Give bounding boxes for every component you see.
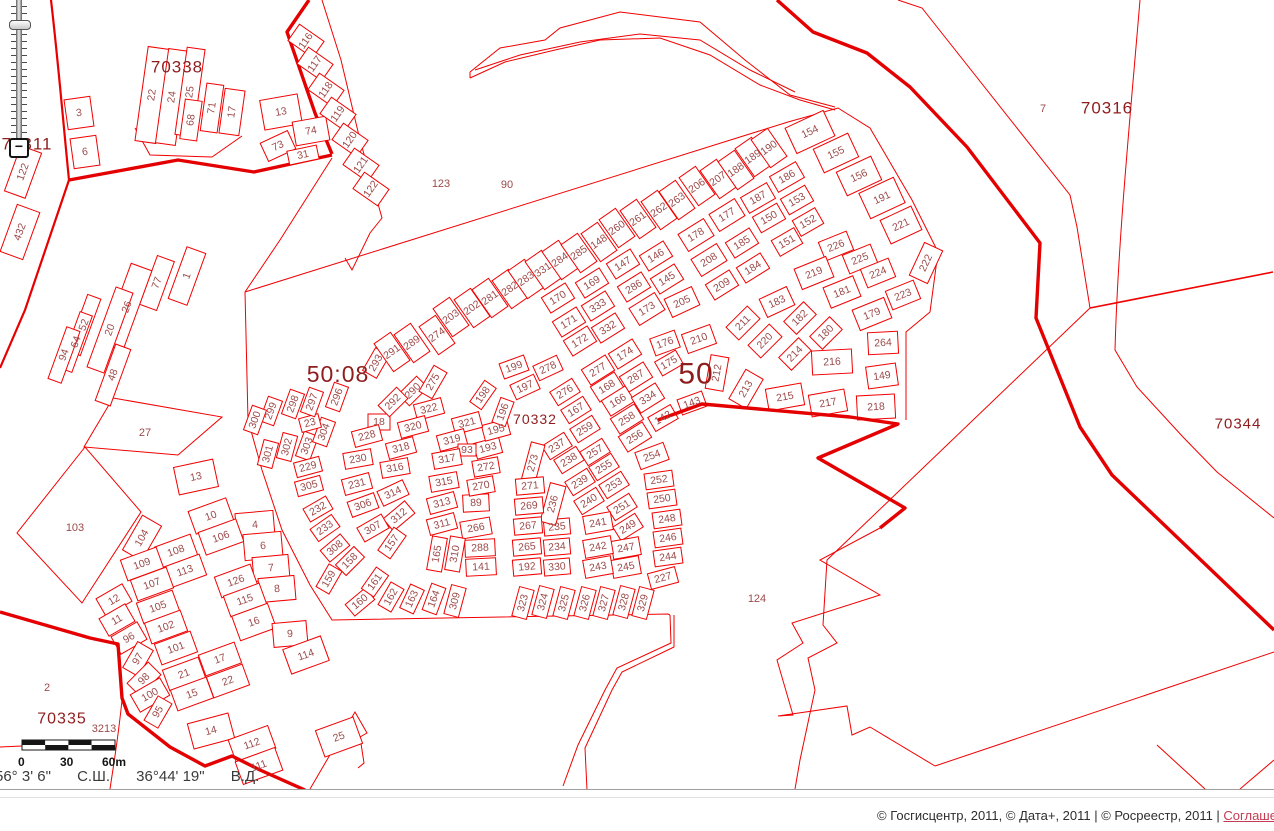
cadastral-zone-label: 70335 [37, 711, 87, 728]
cadastral-zone-label: 70316 [1081, 99, 1133, 118]
parcel-number: 216 [823, 356, 841, 369]
zoom-slider[interactable]: − [7, 0, 33, 164]
parcel-number: 244 [658, 550, 677, 564]
scale-bar-graphic [0, 738, 200, 754]
parcel-number: 93 [461, 444, 473, 456]
parcel-number: 267 [519, 519, 538, 532]
parcel-number: 22 [145, 88, 159, 101]
map-label: 27 [139, 427, 151, 439]
corridor-line [563, 615, 671, 786]
parcel-number: 218 [867, 401, 885, 414]
corridor-line [585, 615, 674, 789]
map-label: 123 [432, 178, 450, 190]
map-label: 7 [1040, 103, 1046, 115]
boundary-line [0, 180, 69, 368]
parcel-number: 288 [471, 542, 489, 555]
parcel-number: 149 [872, 369, 891, 383]
parcel-number: 252 [649, 473, 668, 487]
longitude-dir: В.Д. [231, 768, 260, 785]
parcel-number: 74 [304, 124, 318, 138]
boundary-line [795, 308, 1090, 789]
zigzag-boundary [777, 528, 935, 766]
parcel-number: 68 [184, 113, 198, 126]
boundary-line [51, 0, 69, 180]
map-viewport[interactable]: 3612243222242568711713747331116117118119… [0, 0, 1274, 789]
copyright-credits: © Госгисцентр, 2011, © Дата+, 2011 | © Р… [877, 808, 1274, 823]
scale-tick-60: 60m [102, 755, 126, 769]
parcel-number: 25 [183, 85, 197, 98]
parcel-number: 248 [657, 512, 676, 526]
boundary-curve [1115, 0, 1274, 518]
footer-divider [0, 797, 1274, 798]
parcel-number: 246 [658, 531, 677, 545]
parcel-number: 269 [520, 499, 539, 512]
parcel-number: 235 [548, 520, 567, 533]
parcel-number: 18 [373, 416, 385, 428]
footer: © Госгисцентр, 2011, © Дата+, 2011 | © Р… [0, 789, 1274, 831]
parcel-number: 141 [472, 561, 490, 574]
parcel-number: 24 [165, 90, 179, 103]
boundary-line [1157, 745, 1205, 789]
scale-tick-0: 0 [18, 755, 25, 769]
parcel-number: 271 [521, 479, 540, 492]
zone-boundary-thick [777, 0, 1274, 630]
agreement-link[interactable]: Соглашение об исп [1223, 808, 1274, 823]
stream-inner [475, 34, 795, 92]
parcel-27-outline [84, 398, 222, 455]
parcel-number: 71 [205, 101, 219, 114]
cadastral-map[interactable]: 3612243222242568711713747331116117118119… [0, 0, 1274, 789]
scale-tick-30: 30 [60, 755, 73, 769]
parcel-number: 89 [470, 497, 482, 510]
stream-outline [470, 38, 835, 110]
parcel-number: 250 [652, 492, 671, 506]
parcel-number: 264 [874, 337, 892, 350]
cadastral-zone-label: 50 [678, 358, 713, 391]
cadastral-zone-label: 50:08 [307, 361, 370, 387]
parcel-number: 17 [225, 105, 239, 118]
boundary-line [935, 652, 1274, 766]
parcel-rects [0, 24, 942, 784]
coordinates-readout: 56° 3' 6" С.Ш. 36°44' 19" В.Д. [0, 768, 635, 785]
zone-labels: 70311703387031670344703357033250:0850 [1, 58, 1261, 728]
parcel-number: 13 [274, 105, 288, 119]
cadastral-zone-label: 70344 [1215, 416, 1262, 433]
latitude-dir: С.Ш. [77, 768, 110, 785]
cluster-left-approach [245, 158, 332, 292]
parcel-number: 9 [287, 628, 294, 640]
zoom-slider-handle[interactable] [9, 20, 31, 30]
longitude-value: 36°44' 19" [136, 768, 204, 785]
parcel-number: 8 [274, 583, 281, 595]
parcel-number: 4 [252, 519, 259, 531]
parcel-number: 7 [268, 562, 275, 574]
map-label: 2 [44, 682, 50, 694]
credits-text: © Госгисцентр, 2011, © Дата+, 2011 | © Р… [877, 808, 1223, 823]
map-label: 3213 [92, 723, 116, 735]
parcel-number: 330 [548, 560, 567, 573]
zone-boundary-thick [658, 404, 905, 528]
parcel-number: 234 [548, 540, 567, 553]
parcel-number: 265 [518, 540, 537, 553]
zoom-out-button[interactable]: − [9, 138, 29, 158]
boundary-line [1240, 760, 1274, 789]
map-label: 90 [501, 179, 513, 191]
cadastral-zone-label: 70332 [513, 411, 557, 427]
map-label: 103 [66, 522, 84, 534]
map-label: 124 [748, 593, 766, 605]
parcel-number: 6 [260, 540, 267, 552]
latitude-value: 56° 3' 6" [0, 768, 51, 785]
parcel-number: 192 [518, 560, 537, 573]
cadastral-zone-label: 70338 [151, 58, 203, 77]
